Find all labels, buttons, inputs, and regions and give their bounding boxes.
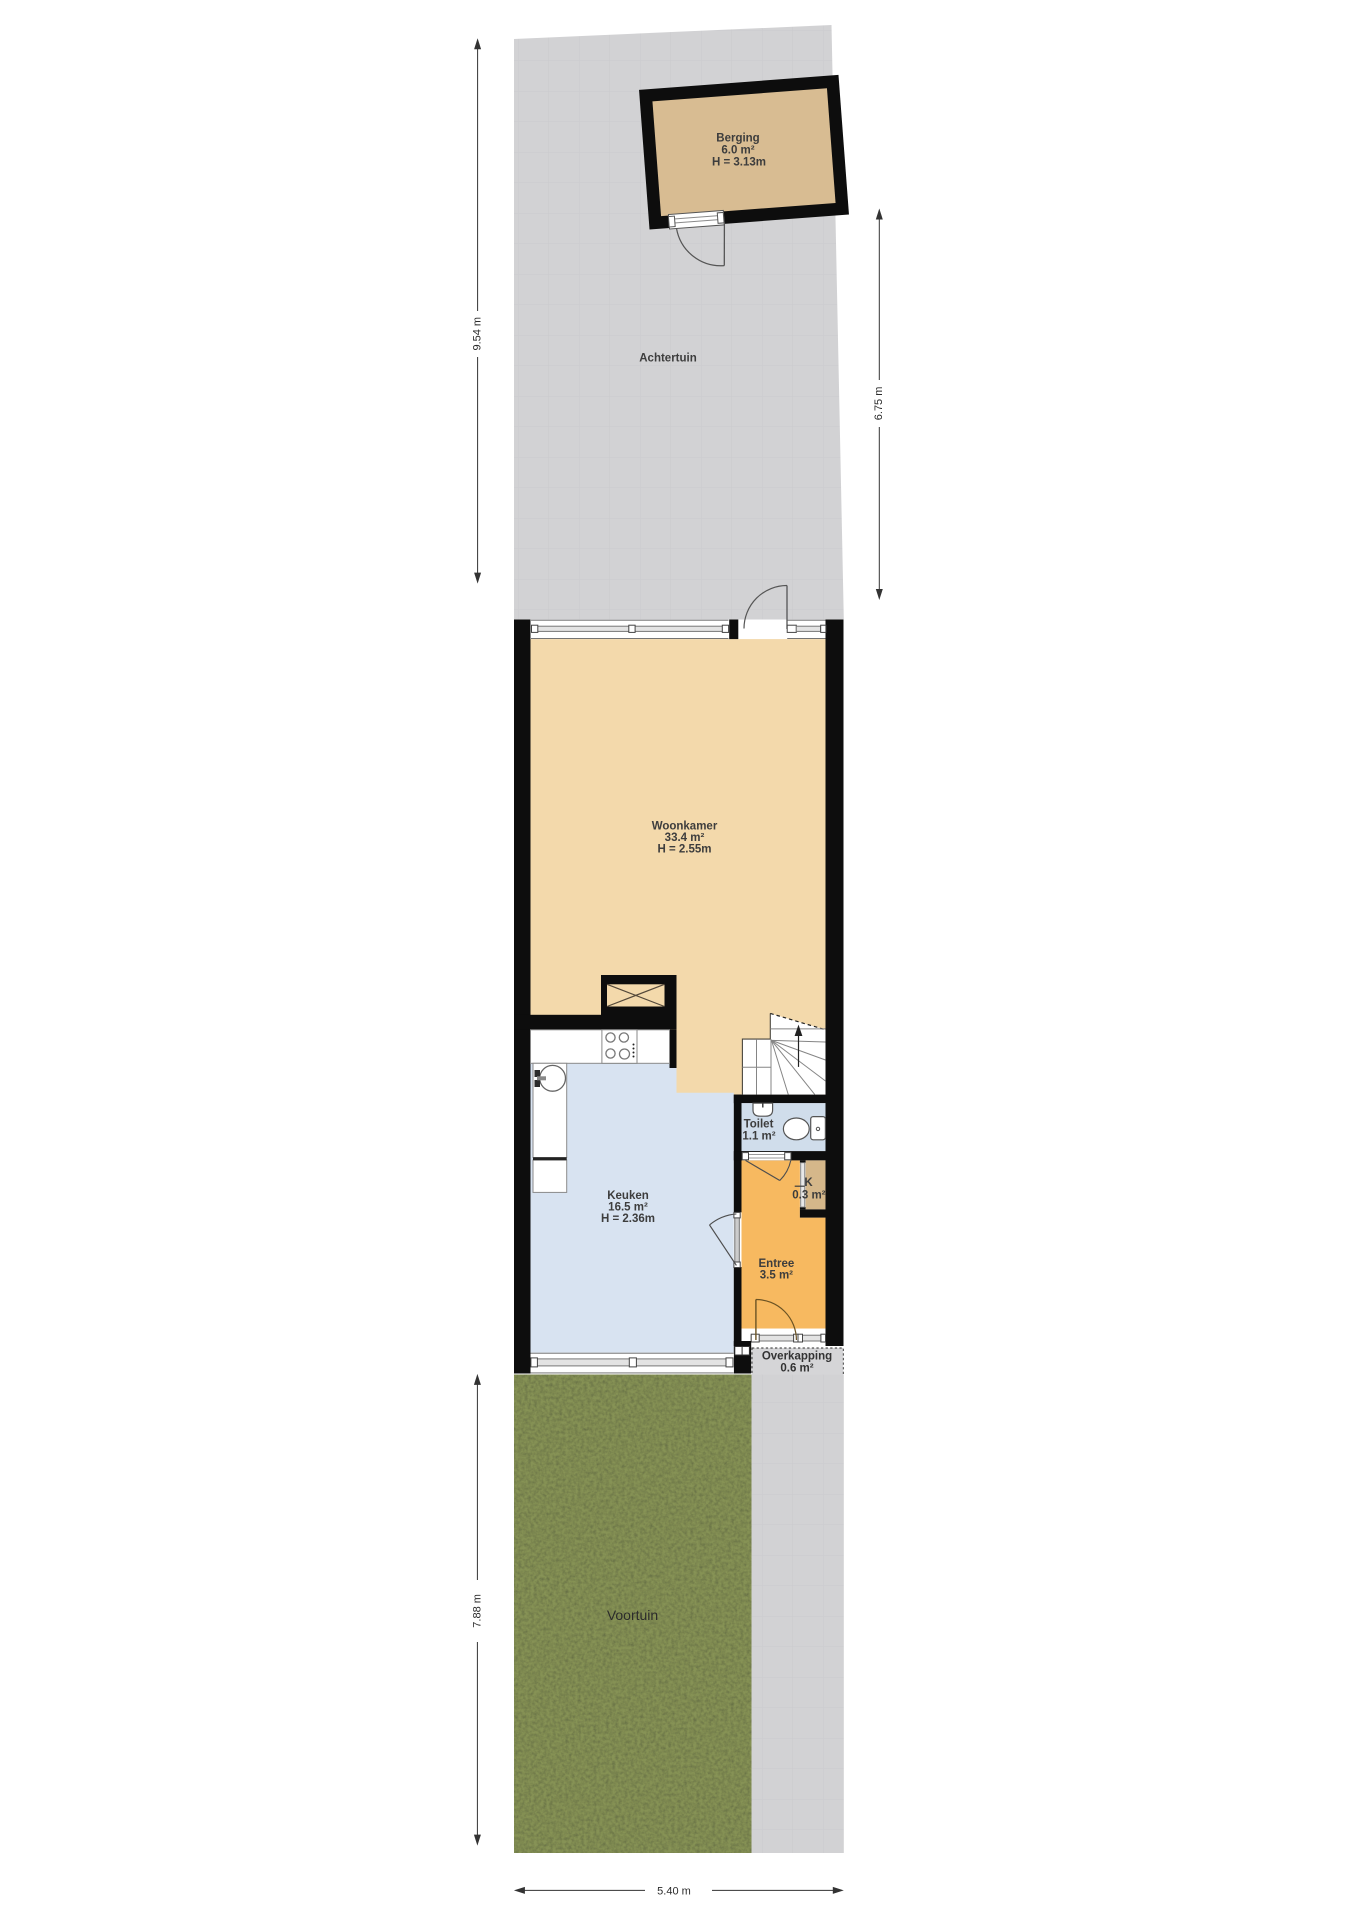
svg-text:Achtertuin: Achtertuin [639,352,697,364]
svg-text:0.6 m²: 0.6 m² [780,1363,813,1375]
svg-text:Overkapping: Overkapping [762,1351,832,1363]
svg-text:Entree: Entree [759,1258,795,1270]
svg-text:3.5 m²: 3.5 m² [760,1270,793,1282]
svg-text:1.1 m²: 1.1 m² [742,1130,775,1142]
svg-text:7.88 m: 7.88 m [471,1594,483,1628]
svg-text:6.0 m²: 6.0 m² [721,145,754,157]
svg-text:H = 3.13m: H = 3.13m [712,157,766,169]
svg-text:Woonkamer: Woonkamer [652,821,718,833]
svg-text:Voortuin: Voortuin [607,1607,658,1623]
svg-text:Keuken: Keuken [607,1190,649,1202]
svg-text:Berging: Berging [716,133,759,145]
svg-text:H = 2.55m: H = 2.55m [657,844,711,856]
svg-text:16.5 m²: 16.5 m² [608,1202,648,1214]
svg-text:33.4 m²: 33.4 m² [665,832,705,844]
svg-text:9.54 m: 9.54 m [472,317,484,351]
svg-text:0.3 m²: 0.3 m² [792,1189,825,1201]
svg-text:6.75 m: 6.75 m [873,387,885,421]
svg-text:Toilet: Toilet [744,1118,774,1130]
svg-text:5.40 m: 5.40 m [657,1885,691,1897]
svg-text:K: K [804,1177,813,1189]
svg-text:H = 2.36m: H = 2.36m [601,1213,655,1225]
